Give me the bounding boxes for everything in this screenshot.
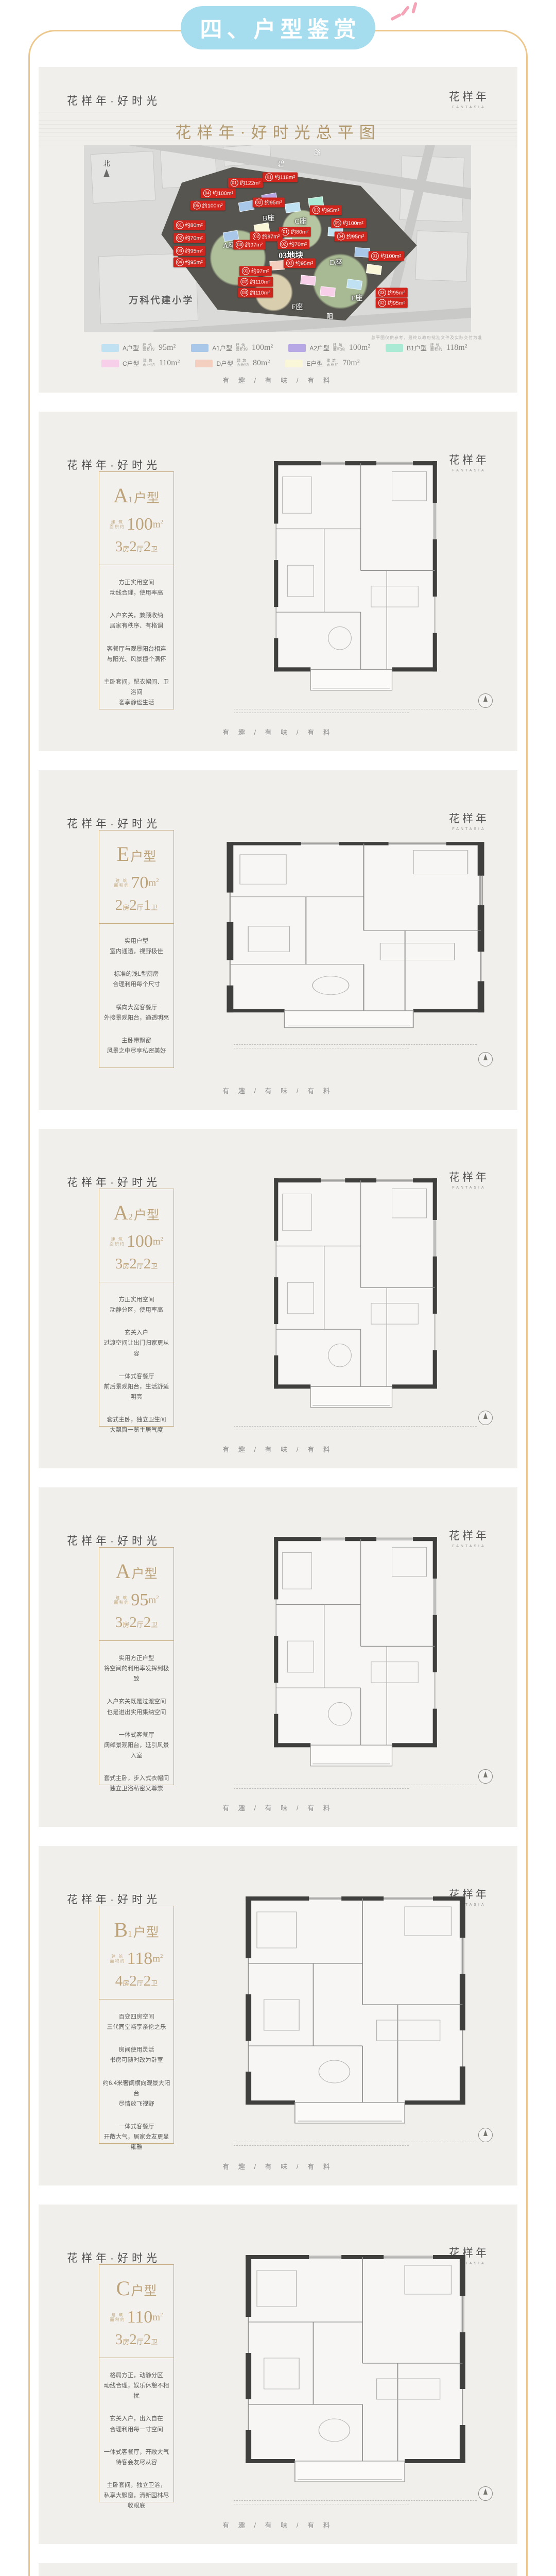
unit-rooms: 3房2厅2卫	[99, 1256, 173, 1273]
map-unit-tag: 01约80m²	[173, 220, 205, 230]
map-unit-tag: 02约110m²	[238, 277, 272, 286]
map-unit-tag: 03约95m²	[376, 287, 408, 297]
unit-info-box: E户型 建 筑面积约 70 m2 2房2厅1卫 实用户型室内通透，视野极佳 标准…	[99, 830, 174, 1068]
unit-rooms: 3房2厅2卫	[99, 2331, 173, 2348]
unit-area: 建 筑面积约 100 m2	[99, 1232, 173, 1251]
floor-plan-drawing	[267, 456, 444, 701]
map-unit-tag: 01约122m²	[228, 178, 263, 188]
unit-area: 建 筑面积约 100 m2	[99, 515, 173, 534]
legend-swatch	[101, 360, 119, 367]
map-unit-tag: 01约118m²	[263, 173, 298, 182]
map-label: D座	[329, 257, 342, 267]
card-footer-motto: 有 趣 / 有 味 / 有 料	[39, 2161, 517, 2171]
map-unit-tag: 01约100m²	[369, 251, 404, 261]
compass-icon	[478, 693, 493, 708]
unit-name: A1户型	[99, 483, 173, 507]
map-unit-tag: 04约100m²	[201, 189, 236, 198]
map-unit-tag: 03约97m²	[233, 240, 265, 249]
unit-info-box: A1户型 建 筑面积约 100 m2 3房2厅2卫 方正实用空间动线合理，使用率…	[99, 471, 174, 709]
legend-swatch	[386, 344, 403, 352]
unit-description: 实用户型室内通透，视野极佳 标准的浅L型厨房合理利用每个尺寸 横向大宽客餐厅外接…	[99, 924, 173, 1056]
master-plan-title: 花样年·好时光总平图	[39, 120, 517, 143]
floor-plan-area	[203, 2233, 507, 2521]
legend-item: A户型建 筑面积约95m²	[101, 343, 176, 352]
brand-title: 花样年·好时光	[67, 2250, 161, 2265]
compass-icon	[478, 2128, 493, 2142]
map-unit-tag: 03约110m²	[238, 287, 272, 297]
map-unit-tag: 02约95m²	[376, 298, 408, 308]
compass-icon	[478, 2486, 493, 2501]
map-unit-tag: 03约95m²	[284, 259, 316, 268]
brand-title: 花样年·好时光	[67, 457, 161, 472]
unit-card-b1: 花样年·好时光 花样年 FANTASIA B1户型 建 筑面积约 118 m2 …	[39, 1846, 517, 2185]
unit-type-legend: A户型建 筑面积约95m²A1户型建 筑面积约100m²A2户型建 筑面积约10…	[101, 343, 477, 368]
dimension-lines	[234, 1782, 477, 1789]
unit-rooms: 2房2厅1卫	[99, 897, 173, 914]
floor-plan-area	[203, 440, 507, 728]
card-footer-motto: 有 趣 / 有 味 / 有 料	[39, 727, 517, 737]
unit-name: C户型	[99, 2276, 173, 2300]
unit-info-box: A户型 建 筑面积约 95 m2 3房2厅2卫 实用方正户型将空间的利用率发挥到…	[99, 1547, 174, 1785]
unit-area: 建 筑面积约 95 m2	[99, 1590, 173, 1610]
unit-card-a2: 花样年·好时光 花样年 FANTASIA A2户型 建 筑面积约 100 m2 …	[39, 1129, 517, 1468]
unit-area: 建 筑面积约 110 m2	[99, 2308, 173, 2327]
legend-swatch	[195, 360, 213, 367]
map-unit-tag: 01约80m²	[279, 227, 311, 236]
unit-card-a1: 花样年·好时光 花样年 FANTASIA A1户型 建 筑面积约 100 m2 …	[39, 412, 517, 751]
brand-title: 花样年·好时光	[67, 1174, 161, 1190]
section-badge-text: 四、户型鉴赏	[196, 12, 361, 44]
brand-title: 花样年·好时光	[67, 93, 161, 108]
unit-summary: A1户型 建 筑面积约 100 m2 3房2厅2卫	[99, 483, 173, 565]
unit-area: 建 筑面积约 118 m2	[99, 1949, 173, 1969]
unit-rooms: 3房2厅2卫	[99, 1614, 173, 1631]
brand-logo-name: 花样年	[449, 89, 489, 104]
brand-logo-sub: FANTASIA	[449, 106, 489, 109]
floor-plan-area	[203, 1874, 507, 2163]
compass-icon	[478, 1411, 493, 1425]
unit-description: 百变四房空间三代同堂畅享亲伦之乐 房间使用灵活书房可随时改为卧室 约6.4米奢阔…	[99, 1999, 173, 2153]
legend-item: B1户型建 筑面积约118m²	[386, 343, 467, 352]
unit-summary: C户型 建 筑面积约 110 m2 3房2厅2卫	[99, 2276, 173, 2358]
brand-logo: 花样年 FANTASIA	[449, 89, 489, 109]
floor-plan-drawing	[267, 1532, 444, 1776]
unit-card-c: 花样年·好时光 花样年 FANTASIA C户型 建 筑面积约 110 m2 3…	[39, 2205, 517, 2544]
north-arrow-icon: 北	[103, 158, 110, 177]
unit-rooms: 4房2厅2卫	[99, 1973, 173, 1990]
master-plan-section: 花样年·好时光 花样年 FANTASIA 花样年·好时光总平图	[39, 67, 517, 393]
brand-title: 花样年·好时光	[67, 816, 161, 831]
brand-title: 花样年·好时光	[67, 1533, 161, 1548]
brand-title: 花样年·好时光	[67, 1891, 161, 1907]
legend-swatch	[101, 344, 119, 352]
unit-rooms: 3房2厅2卫	[99, 538, 173, 555]
north-label: 北	[103, 160, 110, 167]
map-label: 路	[314, 147, 321, 157]
map-unit-tag: 02约70m²	[277, 240, 309, 249]
floor-plan-drawing	[267, 1173, 444, 1418]
unit-info-box: C户型 建 筑面积约 110 m2 3房2厅2卫 格局方正，动静分区动线合理，娱…	[99, 2264, 174, 2502]
unit-name: A户型	[99, 1559, 173, 1583]
unit-summary: B1户型 建 筑面积约 118 m2 4房2厅2卫	[99, 1918, 173, 1999]
map-unit-tag: 05约100m²	[331, 218, 366, 228]
legend-item: D户型建 筑面积约80m²	[195, 359, 270, 368]
floor-plan-area	[203, 1157, 507, 1446]
page: 四、户型鉴赏 花样年·好时光 花样年 FANTASIA 花样年·好时光总平图	[0, 0, 556, 2576]
map-label: F座	[291, 301, 303, 312]
site-plan-map: 北 01约122m²01约118m²04约100m²05约100m²02约95m…	[84, 145, 471, 332]
map-label: B座	[263, 213, 274, 223]
compass-icon	[478, 1769, 493, 1784]
dimension-lines	[234, 2139, 477, 2146]
dimension-lines	[234, 1041, 477, 1048]
legend-swatch	[285, 360, 303, 367]
unit-description: 格局方正，动静分区动线合理，娱乐休憩不相扰 玄关入户，出入自在合理利用每一寸空间…	[99, 2358, 173, 2511]
unit-card-a: 花样年·好时光 花样年 FANTASIA A户型 建 筑面积约 95 m2 3房…	[39, 1487, 517, 1827]
unit-description: 方正实用空间动线合理，使用率高 入户玄关，兼顾收纳居家有秩序、有格调 客餐厅与观…	[99, 565, 173, 708]
map-unit-tag: 03约95m²	[173, 246, 205, 256]
unit-name: E户型	[99, 842, 173, 866]
map-unit-tag: 02约70m²	[173, 233, 205, 243]
legend-swatch	[288, 344, 306, 352]
legend-item: E户型建 筑面积约70m²	[285, 359, 359, 368]
unit-card-d: 花样年·好时光 花样年 FANTASIA D户型 建 筑面积约 80 m2 3房…	[39, 2563, 517, 2576]
legend-swatch	[191, 344, 208, 352]
floor-plan-drawing	[236, 1891, 475, 2133]
floor-plan-area	[203, 1516, 507, 1804]
map-label: E座	[351, 293, 363, 303]
legend-item: A2户型建 筑面积约100m²	[288, 343, 370, 352]
unit-summary: E户型 建 筑面积约 70 m2 2房2厅1卫	[99, 842, 173, 924]
section-badge: 四、户型鉴赏	[181, 6, 375, 49]
dimension-lines	[234, 706, 477, 713]
card-footer-motto: 有 趣 / 有 味 / 有 料	[39, 375, 517, 385]
unit-card-e: 花样年·好时光 花样年 FANTASIA E户型 建 筑面积约 70 m2 2房…	[39, 770, 517, 1110]
map-unit-tag: 02约95m²	[252, 198, 284, 208]
unit-description: 方正实用空间动静分区，使用率高 玄关入户过渡空间让出门归家更从容 一体式客餐厅前…	[99, 1282, 173, 1435]
map-unit-tag: 01约97m²	[239, 266, 271, 276]
unit-area: 建 筑面积约 70 m2	[99, 873, 173, 893]
map-label: 碧	[277, 159, 284, 168]
map-label: C座	[294, 216, 306, 226]
unit-info-box: B1户型 建 筑面积约 118 m2 4房2厅2卫 百变四房空间三代同堂畅享亲伦…	[99, 1906, 174, 2144]
dimension-lines	[234, 2497, 477, 2504]
unit-info-box: A2户型 建 筑面积约 100 m2 3房2厅2卫 方正实用空间动静分区，使用率…	[99, 1189, 174, 1427]
unit-name: B1户型	[99, 1918, 173, 1942]
unit-summary: A2户型 建 筑面积约 100 m2 3房2厅2卫	[99, 1200, 173, 1282]
card-footer-motto: 有 趣 / 有 味 / 有 料	[39, 1803, 517, 1812]
map-disclaimer: 总平图仅供参考，最终以政府批准文件及实际交付为准	[371, 335, 482, 341]
map-unit-tag: 04约95m²	[335, 232, 367, 242]
compass-icon	[478, 1052, 493, 1066]
card-footer-motto: 有 趣 / 有 味 / 有 料	[39, 2520, 517, 2530]
legend-item: A1户型建 筑面积约100m²	[191, 343, 273, 352]
map-unit-tag: 04约95m²	[173, 258, 205, 267]
map-unit-tag: 05约100m²	[190, 200, 225, 210]
unit-summary: A户型 建 筑面积约 95 m2 3房2厅2卫	[99, 1559, 173, 1641]
card-footer-motto: 有 趣 / 有 味 / 有 料	[39, 1444, 517, 1454]
floor-plan-drawing	[215, 838, 496, 1036]
map-label: 万科代建小学	[129, 293, 194, 307]
unit-description: 实用方正户型将空间的利用率发挥到极致 入户玄关既是过渡空间也是进出实用集纳空间 …	[99, 1641, 173, 1794]
dimension-lines	[234, 1423, 477, 1430]
card-footer-motto: 有 趣 / 有 味 / 有 料	[39, 1086, 517, 1095]
floor-plan-drawing	[236, 2250, 475, 2492]
unit-name: A2户型	[99, 1200, 173, 1225]
sunburst-decoration-icon	[391, 2, 422, 31]
map-unit-tag: 03约95m²	[310, 205, 342, 215]
floor-plan-area	[203, 799, 507, 1087]
legend-item: C户型建 筑面积约110m²	[101, 359, 180, 368]
map-label: 阳	[326, 311, 333, 320]
